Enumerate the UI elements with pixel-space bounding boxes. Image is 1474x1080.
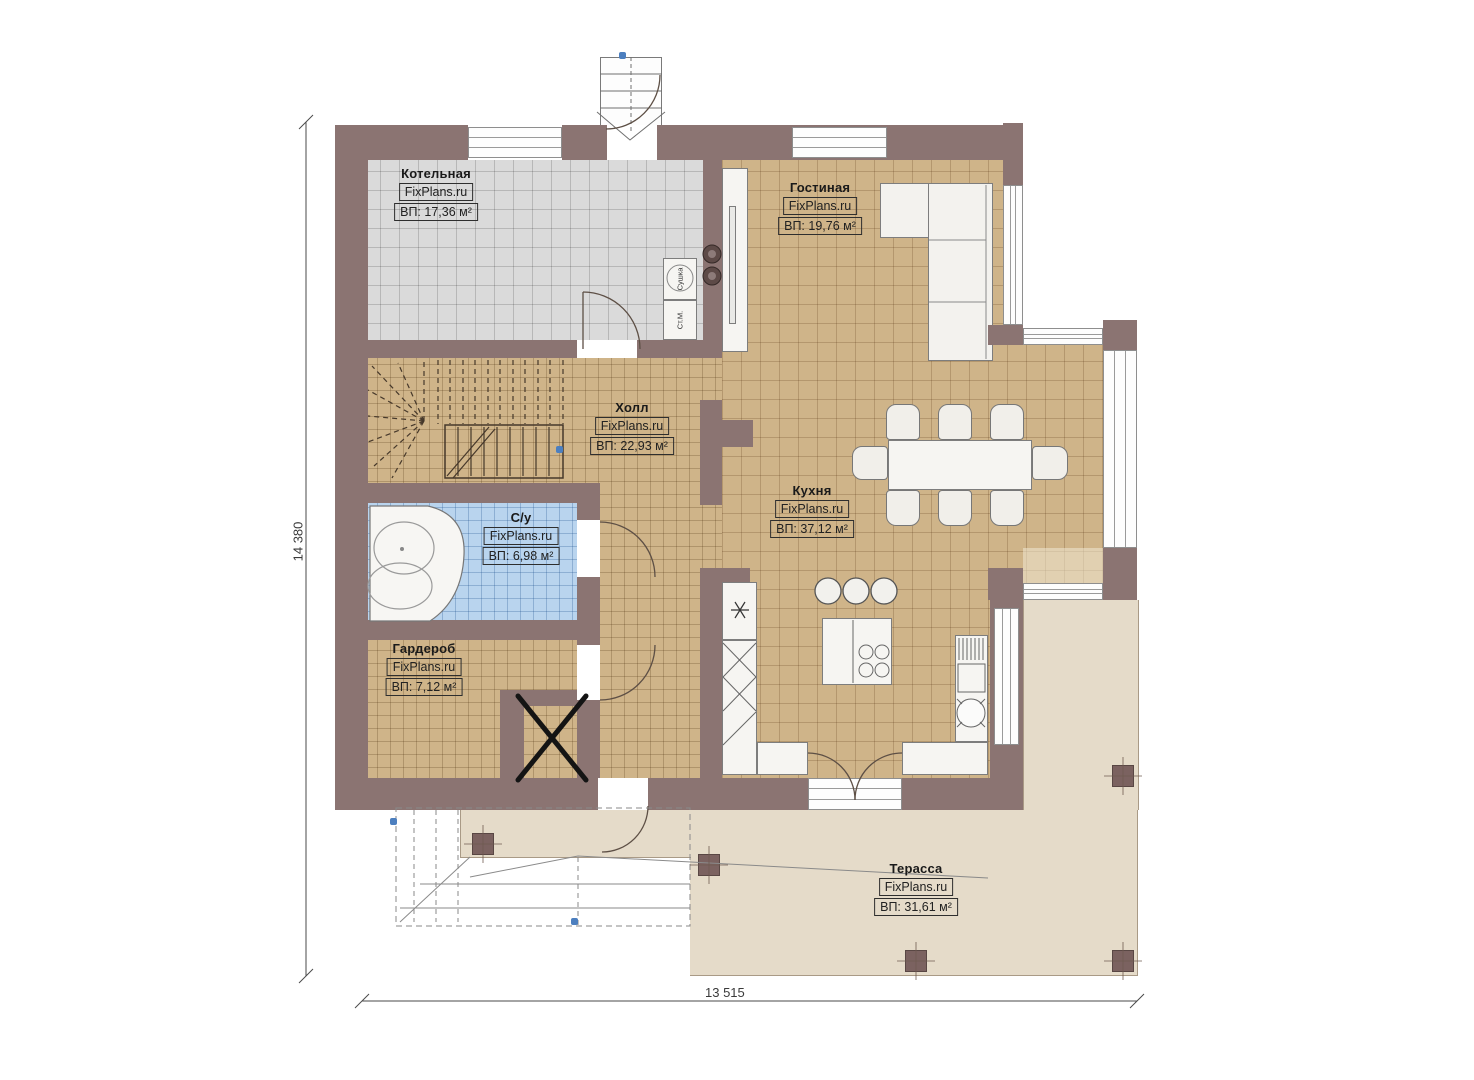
room-area: ВП: 31,61 м² [874, 898, 958, 916]
sofa-corner [928, 183, 993, 361]
room-brand: FixPlans.ru [484, 527, 559, 545]
room-area: ВП: 19,76 м² [778, 217, 862, 235]
room-area: ВП: 6,98 м² [483, 547, 560, 565]
washing-machine: Ст.М. [663, 300, 697, 340]
room-area: ВП: 7,12 м² [386, 678, 463, 696]
tv-screen [729, 206, 736, 324]
wardrobe-door-opening [577, 645, 600, 700]
room-name: Терасса [874, 861, 958, 876]
room-name: С/у [483, 510, 560, 525]
terrace-column [1112, 765, 1134, 787]
fridge [722, 582, 757, 640]
room-name: Котельная [394, 166, 478, 181]
room-name: Гардероб [386, 641, 463, 656]
room-label-boiler: Котельная FixPlans.ru ВП: 17,36 м² [394, 166, 478, 221]
wall-bottom [648, 778, 808, 810]
wall-pillar-east [988, 325, 1023, 345]
survey-marker [619, 52, 626, 59]
room-name: Гостиная [778, 180, 862, 195]
survey-marker [390, 818, 397, 825]
dryer: Сушка [663, 258, 697, 300]
room-brand: FixPlans.ru [399, 183, 474, 201]
dining-chair [990, 490, 1024, 526]
room-label-living: Гостиная FixPlans.ru ВП: 19,76 м² [778, 180, 862, 235]
room-area: ВП: 37,12 м² [770, 520, 854, 538]
window-boiler-north [468, 127, 562, 158]
terrace-column [905, 950, 927, 972]
floor-plan: Сушка Ст.М. [0, 0, 1474, 1080]
wall-pillar-bay-se [1103, 548, 1137, 600]
room-label-terrace: Терасса FixPlans.ru ВП: 31,61 м² [874, 861, 958, 916]
dryer-label: Сушка [676, 268, 685, 291]
entrance-porch [600, 57, 662, 127]
entrance-door-opening [607, 125, 657, 160]
kitchen-counter-west [722, 640, 757, 775]
wall-boiler-south [335, 340, 577, 358]
corridor-floor-patch [700, 505, 722, 568]
room-brand: FixPlans.ru [879, 878, 954, 896]
room-brand: FixPlans.ru [783, 197, 858, 215]
kitchen-counter-south-right [902, 742, 988, 775]
room-brand: FixPlans.ru [387, 658, 462, 676]
wall-bottom [335, 778, 598, 810]
wall-kitchen-west-pier [700, 420, 753, 447]
dining-table [888, 440, 1032, 490]
room-label-hall: Холл FixPlans.ru ВП: 22,93 м² [590, 400, 674, 455]
room-area: ВП: 17,36 м² [394, 203, 478, 221]
wall-kitchen-west-lower [700, 568, 722, 778]
wall-pillar-ne [1003, 123, 1023, 185]
room-name: Кухня [770, 483, 854, 498]
boiler-door-opening [577, 342, 637, 358]
terrace-column [698, 854, 720, 876]
wall-boiler-south [637, 340, 722, 358]
window-living-east [1003, 185, 1023, 325]
dining-chair [990, 404, 1024, 440]
window-bay-north [1023, 328, 1103, 345]
window-bay-south [1023, 583, 1103, 600]
kitchen-island [822, 618, 892, 685]
wall-pillar-kitchen-e [988, 568, 1023, 600]
window-bay-east [1103, 350, 1137, 548]
washer-label: Ст.М. [676, 311, 685, 329]
wall-top [562, 125, 607, 160]
corridor-floor [600, 483, 700, 778]
bathroom-door-opening [577, 520, 600, 577]
back-door-opening [598, 778, 648, 810]
terrace-column [472, 833, 494, 855]
survey-marker [571, 918, 578, 925]
room-label-wardrobe: Гардероб FixPlans.ru ВП: 7,12 м² [386, 641, 463, 696]
dimension-width: 13 515 [705, 985, 745, 1000]
wall-shaft-north [500, 690, 585, 706]
room-brand: FixPlans.ru [775, 500, 850, 518]
dining-chair [938, 490, 972, 526]
wall-bath-north [335, 483, 600, 503]
wall-kitchen-west-upper [700, 400, 722, 505]
survey-marker [556, 446, 563, 453]
french-door-threshold [808, 778, 902, 810]
room-area: ВП: 22,93 м² [590, 437, 674, 455]
wall-pillar-bay-ne [1103, 320, 1137, 350]
room-brand: FixPlans.ru [595, 417, 670, 435]
dining-chair [938, 404, 972, 440]
dining-chair [886, 490, 920, 526]
wall-bottom [902, 778, 1023, 810]
room-name: Холл [590, 400, 674, 415]
room-label-kitchen: Кухня FixPlans.ru ВП: 37,12 м² [770, 483, 854, 538]
wall-left [335, 125, 368, 810]
room-label-bathroom: С/у FixPlans.ru ВП: 6,98 м² [483, 510, 560, 565]
window-living-north [792, 127, 887, 158]
dining-chair [886, 404, 920, 440]
terrace-walkway [460, 810, 691, 858]
window-kitchen-east [994, 608, 1019, 745]
dining-chair [1032, 446, 1068, 480]
wall-bath-south [335, 620, 600, 640]
dimension-height: 14 380 [290, 522, 305, 562]
dining-chair [852, 446, 888, 480]
wall-kitchen-west-pier2 [700, 568, 750, 582]
kitchen-appliance-column [955, 635, 988, 742]
wall-boiler-east [703, 125, 722, 358]
kitchen-counter-south-left [757, 742, 808, 775]
terrace-column [1112, 950, 1134, 972]
